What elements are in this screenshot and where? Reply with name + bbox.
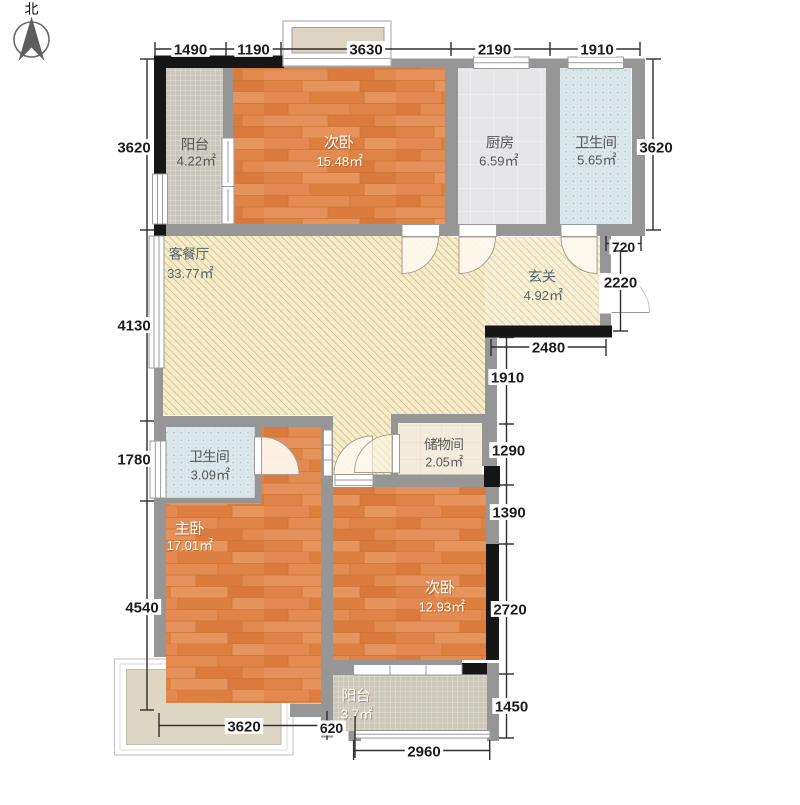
svg-text:1910: 1910 xyxy=(580,41,613,58)
svg-text:1780: 1780 xyxy=(117,451,150,468)
svg-text:5.65: 5.65 xyxy=(577,153,602,168)
svg-text:1910: 1910 xyxy=(491,369,524,386)
svg-text:720: 720 xyxy=(612,239,636,255)
svg-text:4.22: 4.22 xyxy=(177,154,202,169)
svg-text:4130: 4130 xyxy=(117,317,150,334)
svg-text:620: 620 xyxy=(320,720,344,736)
svg-text:6.59: 6.59 xyxy=(479,154,504,169)
svg-text:3620: 3620 xyxy=(227,718,260,735)
svg-text:33.77: 33.77 xyxy=(167,266,200,281)
svg-text:2480: 2480 xyxy=(532,339,565,356)
svg-text:3.7: 3.7 xyxy=(341,707,359,722)
svg-text:3620: 3620 xyxy=(117,139,150,156)
svg-text:2960: 2960 xyxy=(407,743,440,760)
svg-text:3630: 3630 xyxy=(349,41,382,58)
svg-text:2.05: 2.05 xyxy=(425,456,449,470)
svg-text:4.92: 4.92 xyxy=(524,288,549,303)
svg-text:1450: 1450 xyxy=(495,698,528,715)
svg-text:17.01: 17.01 xyxy=(167,538,200,553)
svg-text:4540: 4540 xyxy=(125,599,158,616)
svg-text:1190: 1190 xyxy=(237,41,270,58)
svg-text:2720: 2720 xyxy=(493,601,526,618)
svg-text:3620: 3620 xyxy=(639,139,672,156)
svg-text:1290: 1290 xyxy=(492,442,525,459)
svg-text:3.09: 3.09 xyxy=(191,468,216,483)
svg-text:2220: 2220 xyxy=(604,274,637,291)
svg-text:1390: 1390 xyxy=(492,504,525,521)
svg-text:15.48: 15.48 xyxy=(317,154,350,169)
svg-text:12.93: 12.93 xyxy=(419,600,452,615)
svg-text:1490: 1490 xyxy=(174,41,207,58)
svg-text:2190: 2190 xyxy=(478,41,511,58)
